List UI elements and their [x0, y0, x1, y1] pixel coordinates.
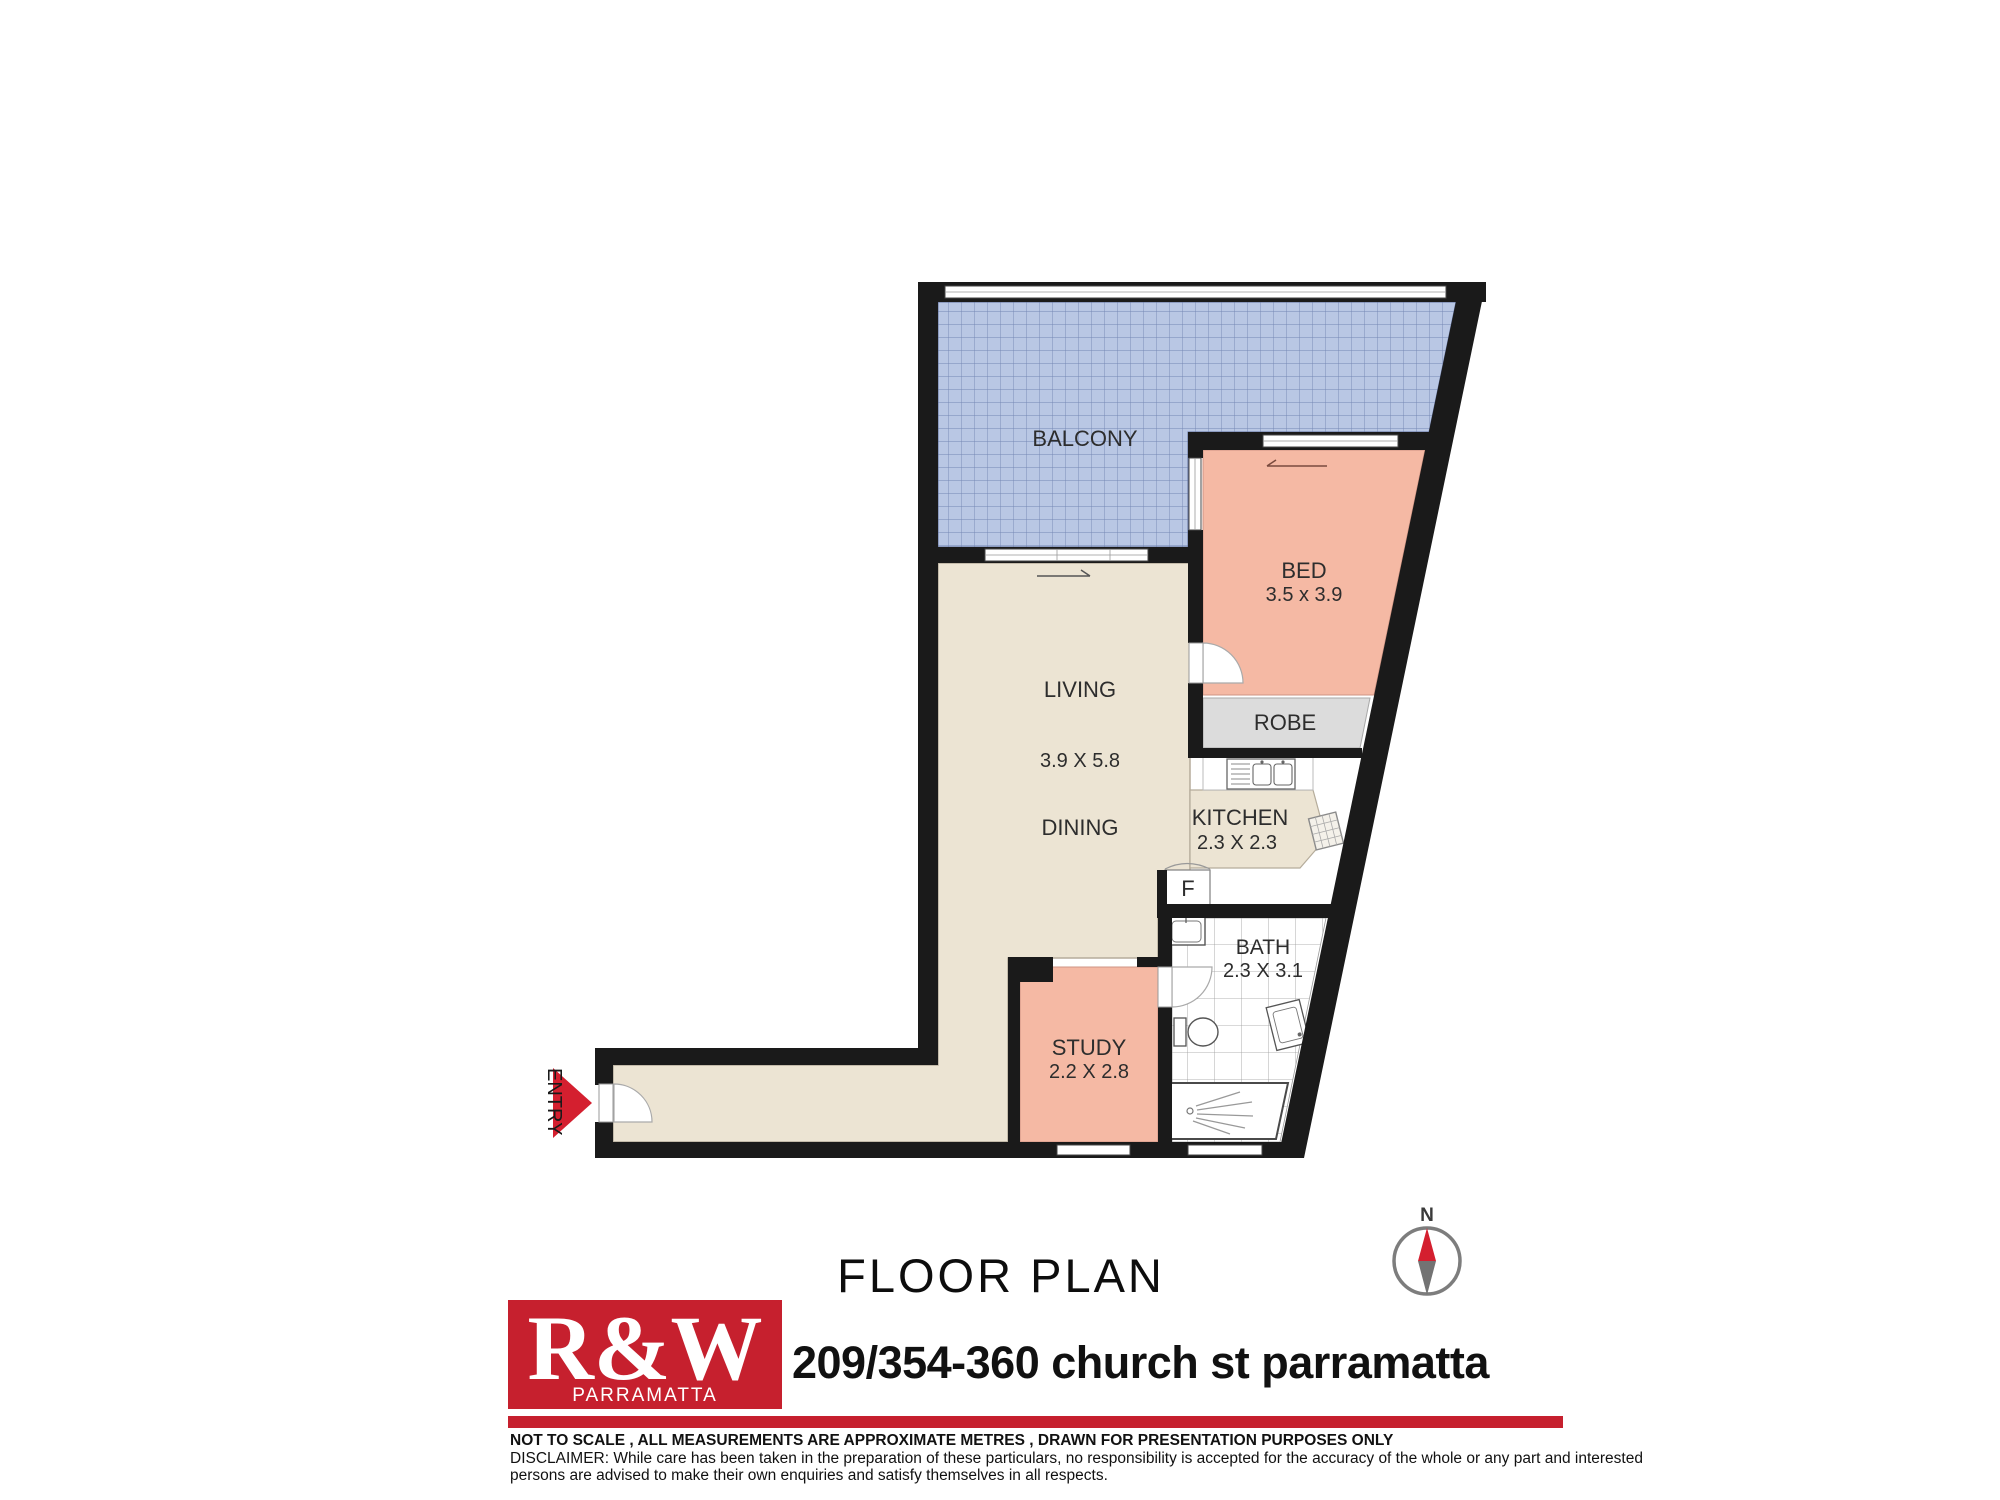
page-title: FLOOR PLAN [837, 1249, 1165, 1302]
disclaimer-line1: DISCLAIMER: While care has been taken in… [510, 1450, 1643, 1467]
floorplan-canvas: ENTRY BALCONY BED 3.5 x 3.9 LIVING 3.9 X… [0, 0, 2000, 1500]
study-dims: 2.2 X 2.8 [1049, 1061, 1129, 1083]
kitchen-label: KITCHEN [1192, 805, 1289, 830]
balcony-label: BALCONY [1032, 426, 1137, 451]
dining-label: DINING [1042, 815, 1119, 840]
footer-divider-bar [508, 1416, 1563, 1428]
bed-dims: 3.5 x 3.9 [1266, 584, 1343, 606]
living-dims: 3.9 X 5.8 [1040, 750, 1120, 772]
kitchen-sink-icon [1203, 753, 1313, 790]
bath-label: BATH [1236, 936, 1290, 959]
disclaimer-line2: persons are advised to make their own en… [510, 1467, 1108, 1484]
logo-location-text: PARRAMATTA [572, 1385, 718, 1406]
robe-label: ROBE [1254, 710, 1316, 735]
bed-label: BED [1281, 558, 1326, 583]
bath-dims: 2.3 X 3.1 [1223, 960, 1303, 982]
agency-logo: R&W PARRAMATTA [508, 1297, 782, 1409]
toilet-icon [1174, 1018, 1218, 1046]
floorplan-page: ENTRY BALCONY BED 3.5 x 3.9 LIVING 3.9 X… [0, 0, 2000, 1500]
shower-icon [1170, 1083, 1288, 1139]
compass-icon: N [1394, 1205, 1460, 1295]
fridge-label: F [1181, 876, 1194, 901]
scale-note: NOT TO SCALE , ALL MEASUREMENTS ARE APPR… [510, 1432, 1394, 1449]
bath-basin-icon [1167, 917, 1205, 945]
entry-label: ENTRY [543, 1068, 565, 1135]
property-address: 209/354-360 church st parramatta [792, 1337, 1490, 1388]
study-label: STUDY [1052, 1035, 1127, 1060]
living-label: LIVING [1044, 677, 1116, 702]
logo-brand-text: R&W [527, 1297, 762, 1399]
compass-north-label: N [1420, 1205, 1434, 1226]
kitchen-dims: 2.3 X 2.3 [1197, 832, 1277, 854]
